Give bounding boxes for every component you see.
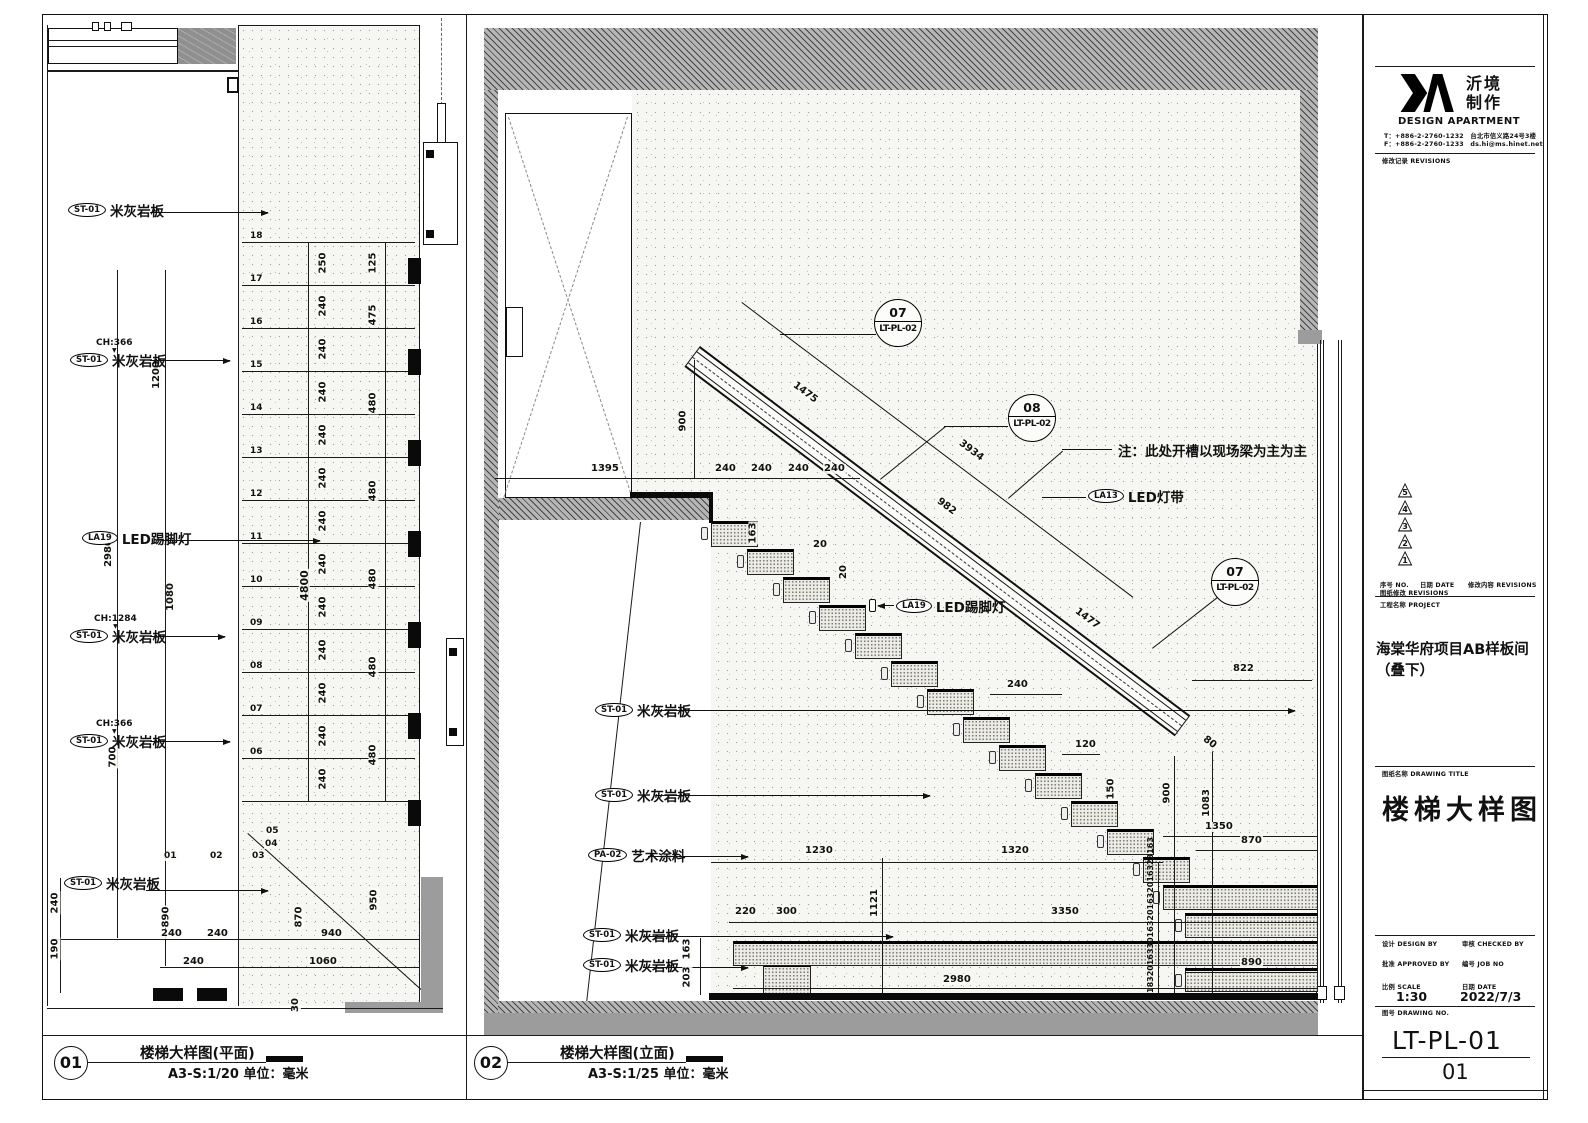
dim-label: 480	[368, 744, 378, 767]
leader-line	[944, 426, 1008, 427]
led-symbol-icon	[869, 599, 876, 612]
wall-light-icon	[408, 349, 421, 375]
stair-slab	[1163, 885, 1318, 910]
dim-label: 240	[318, 467, 328, 490]
tread-number: 09	[249, 619, 264, 628]
tb-col: 修改内容 REVISIONS	[1468, 580, 1537, 589]
stair-tread	[783, 577, 830, 603]
glazing-line	[1323, 340, 1324, 1003]
dim-label: 900	[678, 410, 688, 433]
window-tick-icon	[92, 22, 99, 31]
door-handle	[506, 307, 523, 357]
tread-number: 17	[249, 275, 264, 284]
leader-line	[643, 967, 748, 968]
wall-light-icon	[408, 800, 421, 826]
tread-number: 07	[249, 705, 264, 714]
section-line	[441, 18, 442, 105]
dim-line	[733, 988, 1318, 989]
dim-label: 20	[812, 540, 828, 550]
tb-line	[1375, 596, 1535, 597]
drawing-title: 楼梯大样图	[1382, 788, 1542, 827]
tread-col-line	[308, 242, 309, 801]
wall-line	[47, 1008, 443, 1009]
dim-line	[729, 922, 1318, 923]
material-label: PA-02艺术涂料	[588, 845, 685, 865]
dim-label: 240	[182, 957, 205, 967]
tb-line	[1375, 935, 1535, 936]
dim-label: 822	[1232, 664, 1255, 674]
fixing-icon	[426, 230, 434, 238]
dim-line	[700, 938, 701, 995]
wall-light-icon	[408, 258, 421, 284]
wall-light-icon	[408, 713, 421, 739]
leader-line	[1042, 497, 1086, 498]
concrete-wall-block	[178, 28, 236, 64]
dim-line	[990, 694, 1062, 695]
dim-label: 1080	[166, 582, 176, 612]
logo-en: DESIGN APARTMENT	[1398, 116, 1520, 127]
stair-tread	[891, 661, 938, 687]
tread-number: 06	[249, 748, 264, 757]
dim-label: 125	[368, 252, 378, 275]
dim-label: 3350	[1050, 907, 1080, 917]
tread-number: 13	[249, 447, 264, 456]
stair-tread	[963, 717, 1010, 743]
tb-fax: F：+886-2-2760-1233 ds.hi@ms.hinet.net	[1384, 139, 1543, 148]
dim-label: 240	[823, 464, 846, 474]
view-number: 02	[474, 1046, 508, 1080]
dim-line	[117, 270, 118, 938]
glazing-base	[1334, 986, 1345, 1000]
plan-left-wall-line	[47, 25, 48, 1006]
dim-label: 20	[839, 564, 849, 580]
tread-number: 15	[249, 361, 264, 370]
stair-slab	[733, 941, 1318, 966]
tb-staff: 设计 DESIGN BY	[1382, 939, 1437, 948]
dim-label: 900	[1162, 782, 1172, 805]
dim-label: 480	[368, 392, 378, 415]
view-title: 楼梯大样图(平面)	[140, 1042, 255, 1063]
tb-staff: 批准 APPROVED BY	[1382, 959, 1449, 968]
dim-line	[694, 360, 695, 478]
titleblock-inner-border	[1543, 14, 1544, 1100]
leader-line	[150, 741, 230, 742]
tb-line	[1375, 153, 1535, 154]
tread-number: 10	[249, 576, 264, 585]
material-label: LA13LED灯带	[1088, 486, 1184, 506]
dim-line	[1192, 680, 1312, 681]
dim-label: 220	[734, 907, 757, 917]
step-number: 01	[163, 852, 178, 861]
dim-label: 1395	[590, 464, 620, 474]
tread-col-line	[385, 242, 386, 801]
view-title: 楼梯大样图(立面)	[560, 1042, 675, 1063]
tb-title-label: 图纸名称 DRAWING TITLE	[1382, 769, 1469, 778]
window-tick-icon	[121, 22, 132, 31]
wall-line	[47, 70, 238, 72]
step-number: 04	[264, 840, 279, 849]
dim-label: 1121	[870, 888, 880, 918]
material-label: ST-01米灰岩板	[583, 955, 679, 975]
dim-label: 163	[748, 522, 758, 545]
glazing-line	[1320, 340, 1321, 1003]
sheet-number: 01	[1442, 1060, 1469, 1084]
floor-hatch	[498, 1001, 1318, 1013]
dim-label: 250	[318, 252, 328, 275]
dim-label: 4800	[299, 569, 310, 602]
right-wall-hatch	[1300, 90, 1318, 332]
leader-line	[655, 795, 930, 796]
dim-label: 30	[291, 997, 301, 1013]
material-label: ST-01米灰岩板	[583, 925, 679, 945]
slab-hatch	[484, 28, 1318, 90]
date-value: 2022/7/3	[1460, 989, 1521, 1004]
dim-label: 240	[318, 381, 328, 404]
dim-label: 890	[1240, 958, 1263, 968]
stair-tread	[1071, 801, 1118, 827]
dim-label: 240	[750, 464, 773, 474]
floor-line	[709, 993, 1318, 1000]
dim-label: 480	[368, 480, 378, 503]
caption-band-line	[42, 1035, 1362, 1036]
tread-number: 14	[249, 404, 264, 413]
tb-project-label: 工程名称 PROJECT	[1380, 600, 1440, 609]
glazing-line	[1341, 340, 1342, 1003]
dim-label: 240	[318, 338, 328, 361]
dim-label: 240	[318, 682, 328, 705]
stair-tread	[819, 605, 866, 631]
dim-label: 240	[1006, 680, 1029, 690]
tb-line	[1362, 1090, 1548, 1091]
dim-label: 1083	[1202, 788, 1212, 818]
step-number: 02	[209, 852, 224, 861]
project-name: 海棠华府项目AB样板间（叠下）	[1376, 638, 1540, 680]
tread-number: 18	[249, 232, 264, 241]
dim-label: 1230	[804, 846, 834, 856]
dim-label: 163	[682, 938, 692, 961]
leader-line	[780, 334, 876, 335]
tb-revisions-header: 修改记录 REVISIONS	[1382, 156, 1451, 165]
dim-label: 475	[368, 304, 378, 327]
tb-dwg-label: 图号 DRAWING NO.	[1382, 1008, 1449, 1017]
view-number: 01	[54, 1046, 88, 1080]
landing-edge	[709, 492, 713, 523]
tb-line	[1375, 66, 1535, 67]
stair-tread	[999, 745, 1046, 771]
dim-line	[165, 270, 166, 966]
dim-label: 1060	[308, 957, 338, 967]
left-wall-hatch	[484, 90, 499, 1035]
site-note: 注：此处开槽以现场梁为主为主	[1118, 440, 1307, 460]
leader-line	[162, 540, 320, 541]
wall-line	[48, 46, 178, 47]
titleblock-border	[1362, 14, 1364, 1100]
dim-line	[1212, 740, 1213, 993]
dim-line	[1174, 756, 1175, 993]
dim-label: 2980	[942, 975, 972, 985]
dim-label: 870	[1240, 836, 1263, 846]
dim-label: 1350	[1204, 822, 1234, 832]
dim-line	[1185, 972, 1318, 973]
leader-line	[1062, 449, 1112, 450]
step-number: 03	[251, 852, 266, 861]
leader-line	[150, 636, 225, 637]
panel-divider	[466, 14, 467, 1100]
tb-line	[1375, 766, 1535, 767]
dim-label: 120	[1074, 740, 1097, 750]
dim-line	[711, 862, 1163, 863]
dim-label: 240	[318, 424, 328, 447]
glazing-line	[1338, 340, 1339, 1003]
view-scale: A3-S:1/25 单位：毫米	[588, 1063, 728, 1082]
step-number: 05	[265, 827, 280, 836]
dim-label: 300	[775, 907, 798, 917]
dim-label: 480	[368, 568, 378, 591]
revision-triangle-icon: 1	[1393, 548, 1417, 567]
dim-label: 240	[318, 768, 328, 791]
dim-label: 870	[294, 906, 304, 929]
dim-label: 940	[320, 929, 343, 939]
dim-label: 190	[50, 938, 60, 961]
scale-value: 1:30	[1396, 989, 1427, 1004]
wall-light-icon	[408, 622, 421, 648]
window-tick-icon	[104, 22, 111, 31]
column-corner	[227, 77, 239, 93]
detail-callout: 08LT-PL-02	[1008, 394, 1056, 442]
leader-line	[655, 710, 1295, 711]
fixing-icon	[426, 150, 434, 158]
dim-label: 240	[318, 725, 328, 748]
material-label: LA19LED踢脚灯	[896, 596, 1005, 616]
wall-cap	[1298, 330, 1322, 344]
tread-rows	[242, 242, 415, 802]
dim-label: 240	[318, 295, 328, 318]
material-tag: ST-01	[68, 203, 106, 217]
fixing-icon	[449, 648, 457, 656]
drawing-sheet: 18 17 16 15 14 13 12 11 10 09 08 07 06 2…	[0, 0, 1588, 1123]
wall-plan	[421, 877, 443, 1008]
dim-label: 240	[206, 929, 229, 939]
material-label: ST-01米灰岩板	[68, 200, 164, 220]
downlight-icon	[197, 988, 227, 1001]
tread-number: 12	[249, 490, 264, 499]
fixing-icon	[449, 728, 457, 736]
tb-line	[1382, 1057, 1530, 1058]
leader-line	[150, 212, 268, 213]
leader-line	[146, 890, 268, 891]
material-label: LA19LED踢脚灯	[82, 528, 191, 548]
downlight-icon	[153, 988, 183, 1001]
dim-line	[160, 967, 420, 968]
wall-line	[48, 40, 178, 41]
leader-line	[648, 856, 748, 857]
logo-mark	[1400, 74, 1462, 112]
tread-number: 08	[249, 662, 264, 671]
dim-label: 240	[318, 553, 328, 576]
dim-label: 480	[368, 656, 378, 679]
detail-callout: 07LT-PL-02	[874, 299, 922, 347]
wall-light-icon	[408, 531, 421, 557]
detail-callout: 07LT-PL-02	[1211, 558, 1259, 606]
dim-label: 203	[682, 966, 692, 989]
tread-number: 16	[249, 318, 264, 327]
dim-line	[52, 939, 420, 940]
dim-label: 240	[160, 929, 183, 939]
dim-label: 240	[50, 892, 60, 915]
dim-line	[1158, 862, 1159, 993]
stair-tread	[855, 633, 902, 659]
dim-line	[495, 478, 860, 479]
dim-label: 240	[714, 464, 737, 474]
scale-bar-icon	[266, 1056, 303, 1062]
tb-staff: 审核 CHECKED BY	[1462, 939, 1524, 948]
scale-bar-icon	[686, 1056, 723, 1062]
stair-tread	[747, 549, 794, 575]
leader-line	[643, 936, 893, 937]
logo-cn: 沂境制作	[1466, 74, 1502, 112]
dim-label: 1320	[1000, 846, 1030, 856]
dim-label: 950	[369, 889, 379, 912]
stair-slab	[1185, 913, 1318, 938]
leader-line	[878, 605, 894, 606]
dim-line	[1062, 754, 1100, 755]
stair-pedestal	[763, 966, 811, 995]
wall-light-icon	[408, 440, 421, 466]
leader-line	[150, 360, 230, 361]
dim-label: 240	[787, 464, 810, 474]
dim-label: 240	[318, 510, 328, 533]
tb-staff: 编号 JOB NO	[1462, 959, 1504, 968]
riser-dim-stack: 1832016330163201632016323163	[1146, 865, 1155, 993]
stair-tread	[1035, 773, 1082, 799]
tb-line	[1375, 1006, 1535, 1007]
dim-line	[1196, 850, 1318, 851]
stair-tread	[927, 689, 974, 715]
view-scale: A3-S:1/20 单位：毫米	[168, 1063, 308, 1082]
drawing-number: LT-PL-01	[1392, 1026, 1502, 1055]
dim-label: 890	[161, 906, 171, 929]
dim-label: 240	[318, 596, 328, 619]
dim-label: 240	[318, 639, 328, 662]
floor-slab	[484, 1013, 1318, 1035]
dim-line	[882, 858, 883, 993]
dim-label: 150	[1106, 778, 1116, 801]
landing-slab-hatch	[499, 498, 711, 520]
